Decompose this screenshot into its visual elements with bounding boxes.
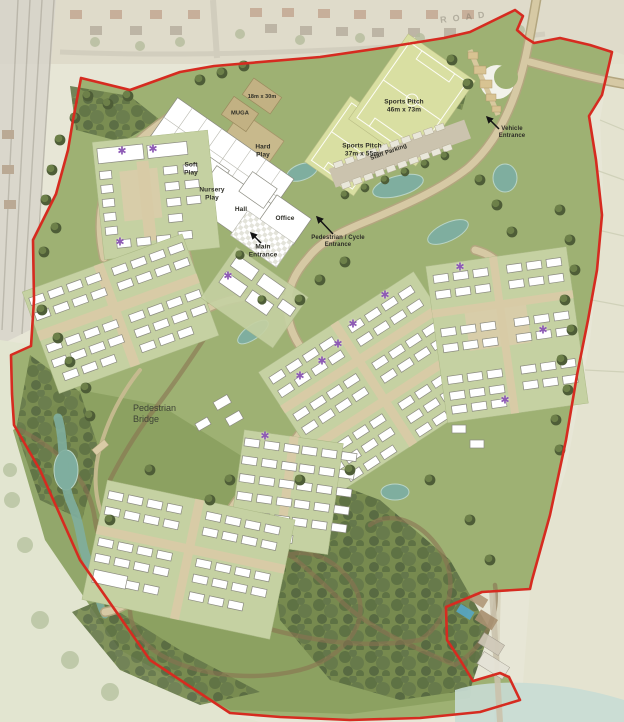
pedestrian-cycle-entrance-label: Pedestrian / Cycle Entrance xyxy=(310,235,366,249)
affordable-housing-star-icon: ✱ xyxy=(148,145,157,156)
affordable-housing-star-icon: ✱ xyxy=(317,357,326,368)
hard-play-label: Hard Play xyxy=(250,143,276,158)
masterplan-artwork xyxy=(0,0,624,722)
sports-pitch-large-dims: 46m x 73m xyxy=(381,106,427,114)
soft-play-label: Soft Play xyxy=(179,161,203,176)
affordable-housing-star-icon: ✱ xyxy=(223,272,232,283)
sports-pitch-large-label: Sports Pitch 46m x 73m xyxy=(381,98,427,113)
pedestrian-bridge-label: Pedestrian Bridge xyxy=(133,403,197,426)
main-entrance-label: Main Entrance xyxy=(245,243,281,258)
sports-pitch-large-name: Sports Pitch xyxy=(381,98,427,106)
affordable-housing-star-icon: ✱ xyxy=(500,396,509,407)
affordable-housing-star-icon: ✱ xyxy=(538,326,547,337)
hall-label: Hall xyxy=(235,206,247,214)
affordable-housing-star-icon: ✱ xyxy=(260,432,269,443)
office-label: Office xyxy=(275,215,294,223)
affordable-housing-star-icon: ✱ xyxy=(117,147,126,158)
affordable-housing-star-icon: ✱ xyxy=(380,291,389,302)
affordable-housing-star-icon: ✱ xyxy=(455,263,464,274)
vehicle-entrance-label: Vehicle Entrance xyxy=(495,126,529,140)
affordable-housing-star-icon: ✱ xyxy=(115,238,124,249)
sports-pitch-small-name: Sports Pitch xyxy=(339,142,385,150)
nursery-play-label: Nursery Play xyxy=(196,186,228,201)
affordable-housing-star-icon: ✱ xyxy=(348,320,357,331)
muga-dims-label: 18m x 30m xyxy=(248,94,276,100)
muga-label: MUGA xyxy=(231,111,249,118)
affordable-housing-star-icon: ✱ xyxy=(333,340,342,351)
masterplan-canvas: ROAD MUGA 18m x 30m Hard Play Soft Play … xyxy=(0,0,624,722)
affordable-housing-star-icon: ✱ xyxy=(295,372,304,383)
